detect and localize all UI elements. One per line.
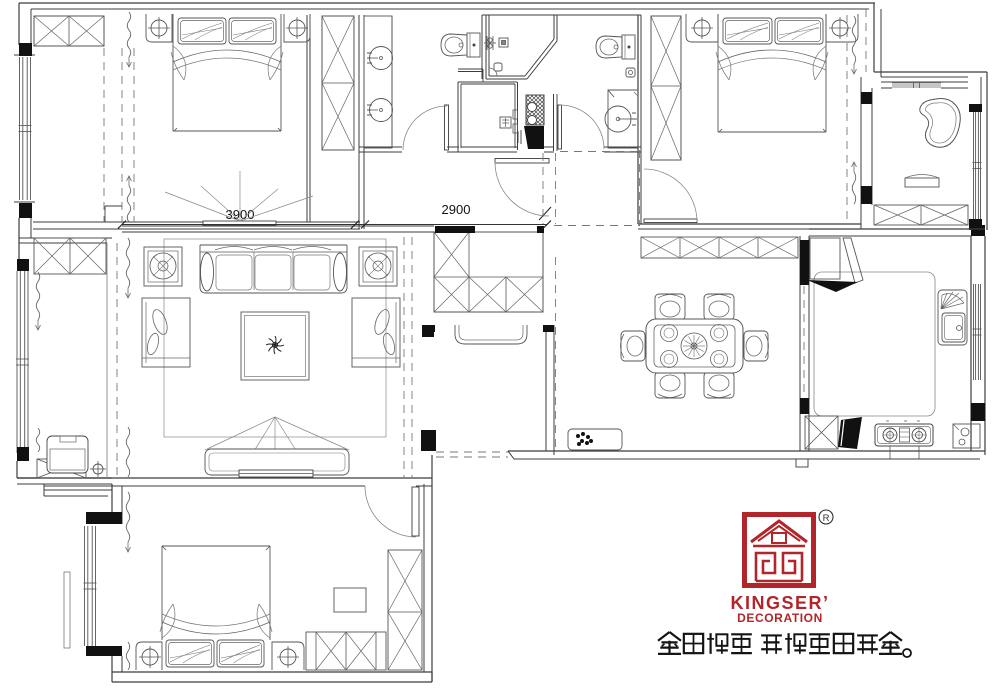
svg-text:2900: 2900 bbox=[442, 202, 471, 217]
svg-text:DECORATION: DECORATION bbox=[737, 611, 823, 625]
svg-text:R: R bbox=[823, 513, 830, 524]
svg-text:KINGSER’: KINGSER’ bbox=[730, 593, 829, 613]
